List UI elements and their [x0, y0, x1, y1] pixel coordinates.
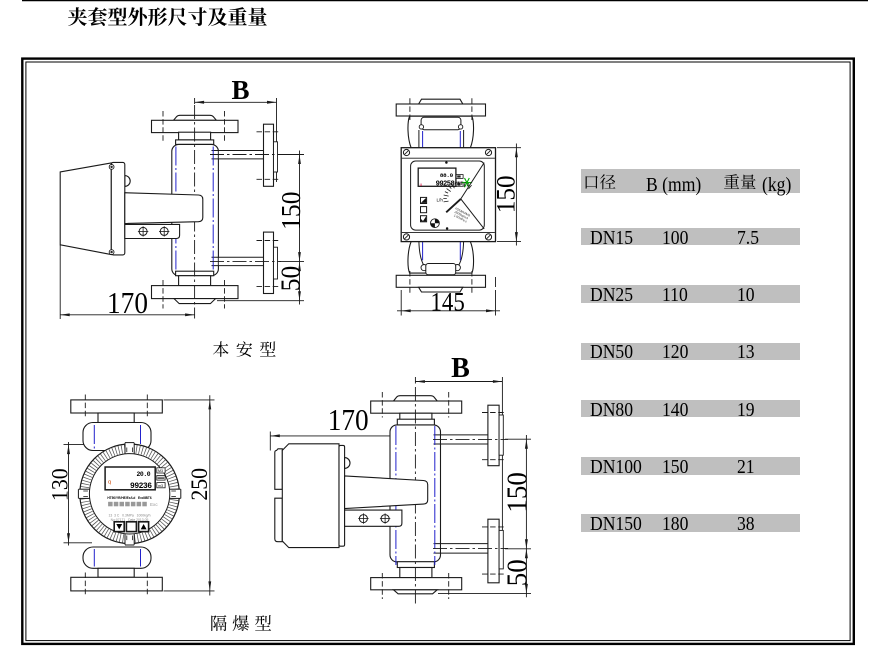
- svg-text:L/h: L/h: [437, 197, 444, 202]
- svg-text:B: B: [451, 353, 470, 384]
- svg-text:88.0: 88.0: [440, 172, 454, 179]
- svg-text:q: q: [108, 479, 111, 485]
- svg-text:B: B: [231, 75, 249, 105]
- svg-text:150: 150: [502, 472, 534, 512]
- svg-text:M3: M3: [158, 469, 163, 473]
- svg-text:50: 50: [274, 266, 305, 292]
- svg-text:99236: 99236: [130, 482, 152, 491]
- svg-text:20.0: 20.0: [136, 471, 150, 478]
- svg-text:150: 150: [275, 192, 306, 230]
- svg-text:50: 50: [502, 559, 534, 586]
- svg-text:130: 130: [47, 468, 73, 501]
- svg-text:170: 170: [328, 403, 369, 437]
- svg-text:13 3 C 0.3MPa 1000kg/h: 13 3 C 0.3MPa 1000kg/h: [108, 513, 150, 517]
- svg-text:Exc: Exc: [150, 502, 158, 507]
- svg-text:m3: m3: [158, 484, 163, 488]
- svg-text:250: 250: [187, 468, 213, 501]
- svg-text:99258: 99258: [436, 181, 455, 189]
- svg-text:170: 170: [107, 287, 148, 321]
- svg-text:HT50/YR/HE/Ex/Ld ExdIIBT6: HT50/YR/HE/Ex/Ld ExdIIBT6: [107, 496, 151, 500]
